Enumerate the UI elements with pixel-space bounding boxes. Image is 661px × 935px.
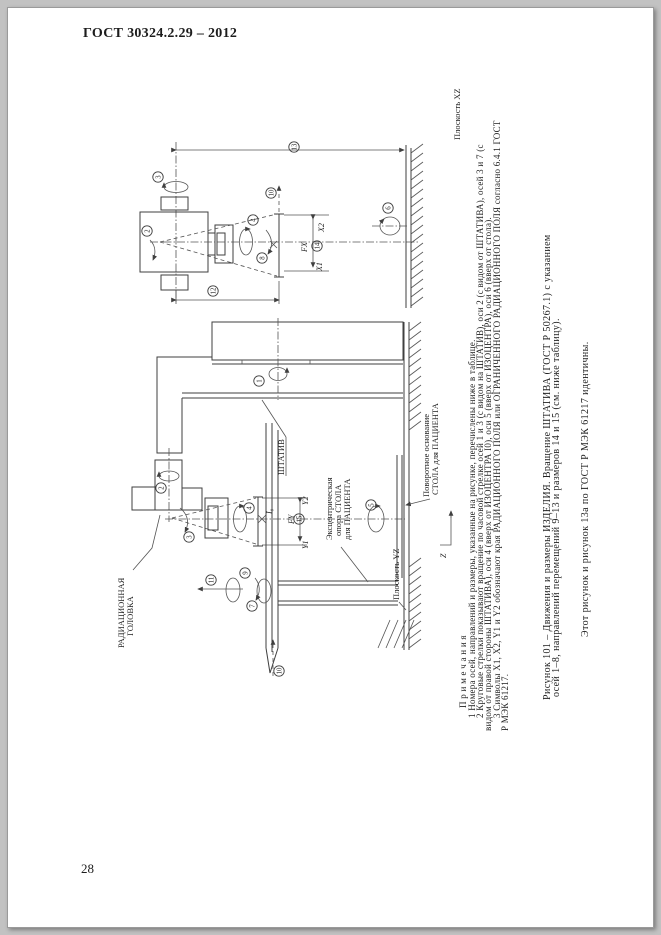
gantry-arm [157, 357, 212, 453]
axis-6-arrow [381, 219, 384, 222]
radiation-head-box-side [155, 460, 182, 510]
figure-caption: Рисунок 101 – Движения и размеры ИЗДЕЛИЯ… [542, 234, 591, 700]
axis-marker-number-4: 4 [250, 218, 257, 222]
note-line-3b: Р МЭК 61217. [500, 674, 510, 731]
gantry-stand [212, 322, 403, 360]
axis-3-arrow-side [180, 508, 188, 532]
plane-yz-leader [399, 602, 406, 610]
axis-marker-number-9: 9 [242, 571, 249, 575]
axis-marker-number-2: 2 [144, 229, 151, 233]
notes-block: П р и м е ч а н и я 1 Номера осей, напра… [458, 120, 510, 731]
axis-marker-number-2: 2 [158, 486, 165, 490]
turntable-label-line2: СТОЛА для ПАЦИЕНТА [430, 402, 440, 495]
fx-label: FX [300, 241, 309, 253]
axis-marker-number-10: 10 [268, 189, 275, 196]
x1-label: X1 [315, 262, 324, 272]
axis-marker-number-11: 11 [208, 577, 215, 584]
axis-marker-number-12: 12 [210, 287, 217, 294]
radiation-head-label-line2: ГОЛОВКА [125, 595, 135, 636]
stand-label: ШТАТИВ [276, 439, 286, 475]
axis-marker-number-7: 7 [249, 604, 256, 608]
z-axis-label: Z [439, 553, 448, 558]
axis-marker-number-1: 1 [256, 379, 263, 382]
caption-line-2: осей 1–8, направлений перемещений 9–13 и… [551, 318, 562, 697]
axis-marker-number-5: 5 [368, 503, 375, 507]
collimator-neck [208, 233, 215, 255]
upper-view [140, 142, 423, 308]
x2-label: X2 [317, 223, 326, 233]
axis-marker-number-3: 3 [155, 175, 162, 179]
y1-label: Y1 [301, 541, 310, 549]
turntable-leader [406, 499, 430, 505]
lower-view [132, 318, 451, 676]
radiation-head-leader [133, 515, 160, 570]
axis-marker-number-3: 3 [186, 535, 193, 539]
collimator-inner-side [208, 506, 218, 530]
head-bottom-block [161, 275, 188, 290]
axis-marker-number-13: 13 [291, 143, 298, 150]
head-left-block [132, 487, 155, 510]
axis-marker-number-6: 6 [385, 206, 392, 210]
y2-label: Y2 [301, 497, 310, 505]
head-right-block [182, 488, 202, 510]
z-axis-indicator [440, 512, 451, 545]
axis-2-arrow-front [150, 240, 155, 260]
plane-yz-label: Плоскость YZ [391, 548, 401, 600]
eccentric-support-leader [341, 547, 368, 582]
diagram-labels: РАДИАЦИОННАЯ ГОЛОВКА ШТАТИВ Эксцентричес… [116, 88, 462, 648]
note-line-3a: 3 Символы X1, X2, Y1 и Y2 обозначают кра… [492, 120, 502, 718]
scanned-page: { "page": { "header_title": "ГОСТ 30324.… [0, 0, 661, 935]
axis-marker-number-10: 10 [276, 667, 283, 674]
eccentric-label-line3: для ПАЦИЕНТА [342, 478, 352, 540]
collimator-box-front [215, 225, 233, 263]
axis-marker-number-15: 15 [296, 515, 303, 522]
axis-marker-number-14: 14 [314, 242, 321, 249]
isocentre-label: I₀ [265, 508, 274, 515]
axis-marker-number-8: 8 [259, 256, 266, 260]
figure-101-diagram: РАДИАЦИОННАЯ ГОЛОВКА ШТАТИВ Эксцентричес… [0, 0, 661, 935]
axis-9-rotation-ellipse [226, 578, 240, 602]
caption-identity-line: Этот рисунок и рисунок 13а по ГОСТ Р МЭК… [580, 341, 591, 637]
axis-marker-number-4: 4 [246, 506, 253, 510]
head-top-block [161, 197, 188, 210]
upper-floor-hatching [411, 144, 423, 306]
plane-xz-label: Плоскость XZ [452, 88, 462, 140]
beam-cone-upper-edge [160, 214, 277, 242]
fy-label: FY [287, 513, 296, 525]
collimator-inner [217, 233, 225, 255]
